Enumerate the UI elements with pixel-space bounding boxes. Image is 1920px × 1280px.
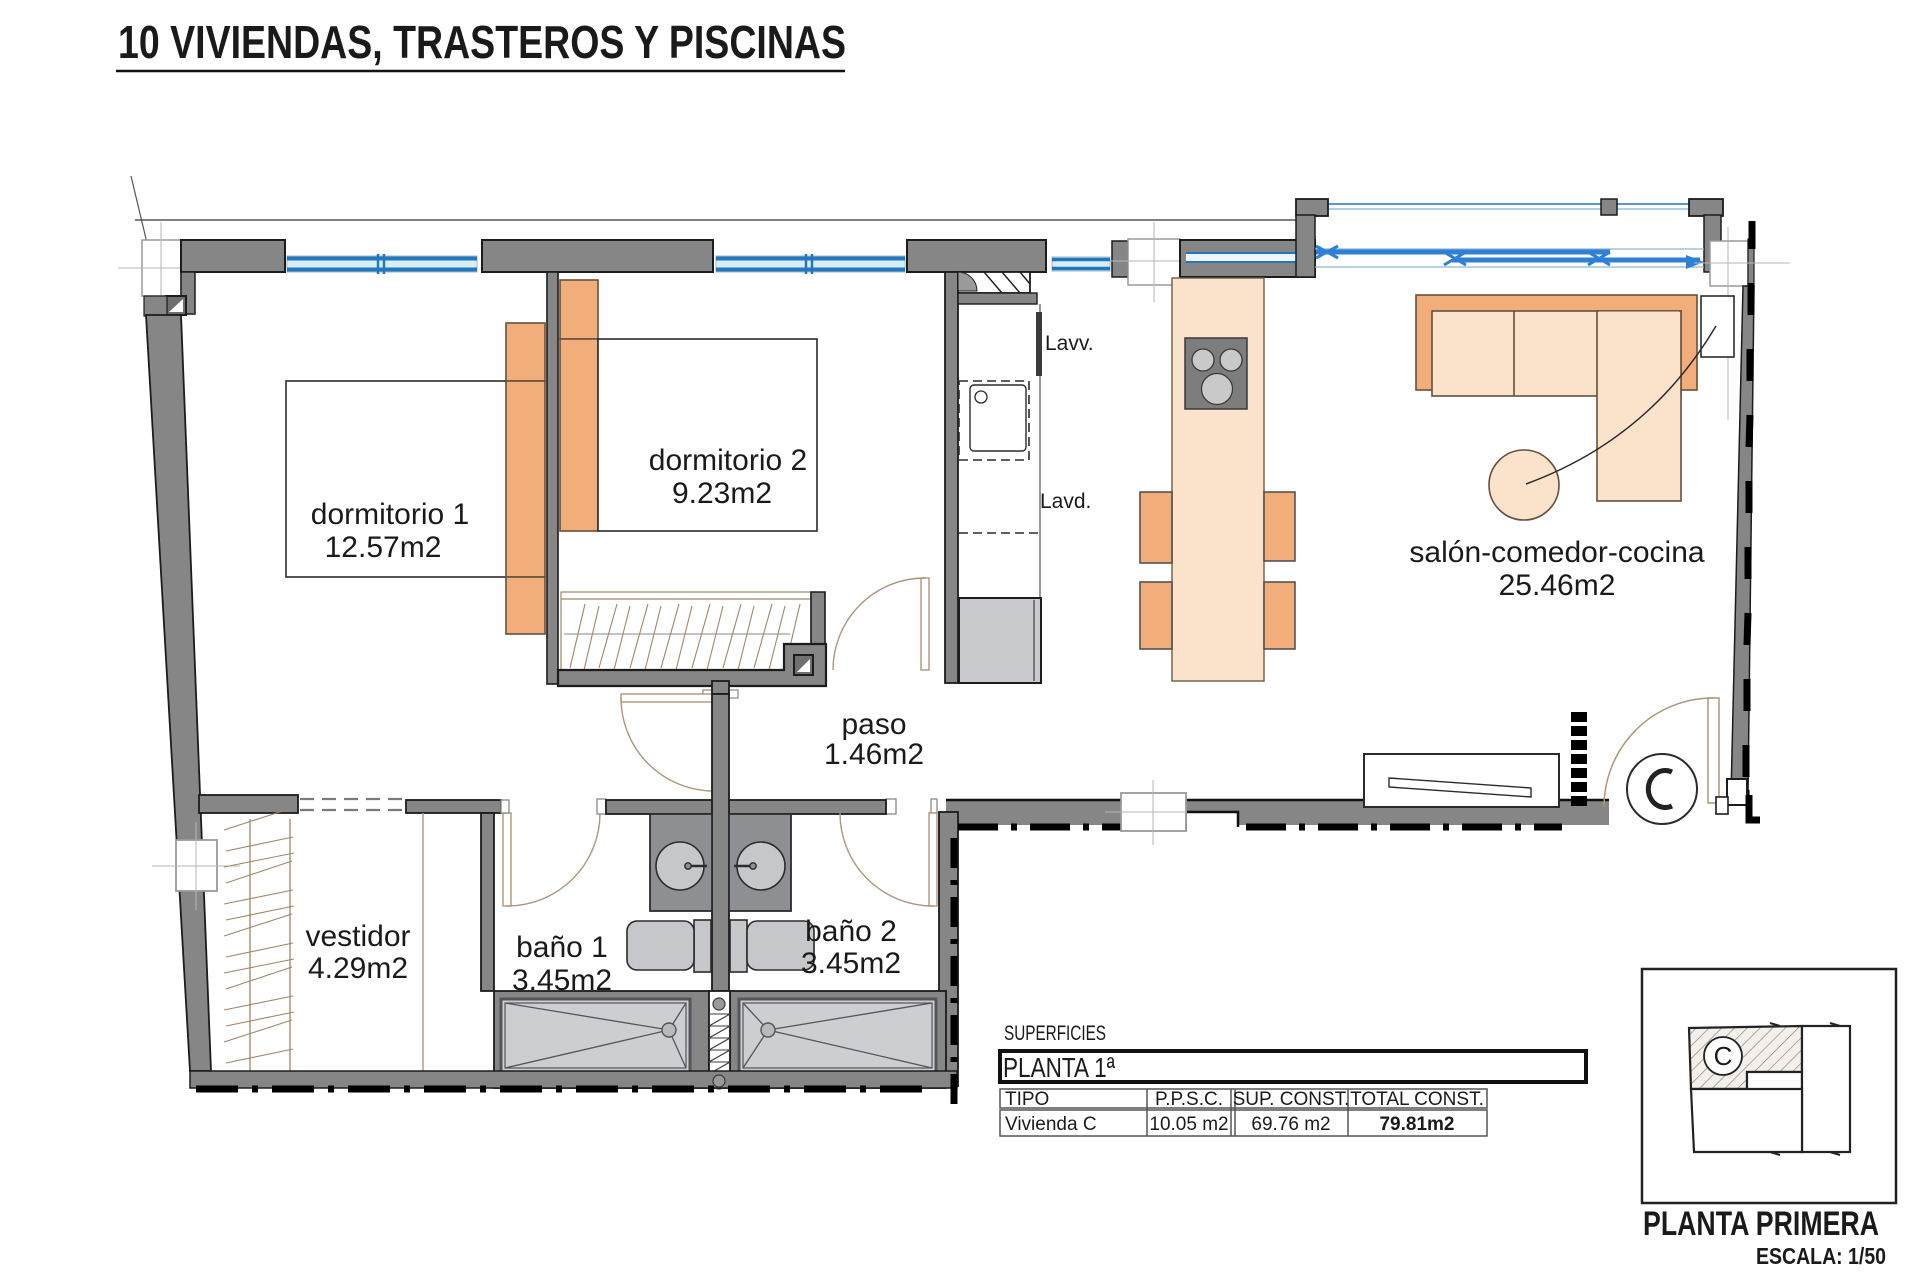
svg-text:79.81m2: 79.81m2 <box>1379 1114 1454 1135</box>
svg-text:TIPO: TIPO <box>1005 1089 1049 1110</box>
svg-text:dormitorio 1: dormitorio 1 <box>311 498 469 531</box>
svg-text:9.23m2: 9.23m2 <box>672 477 772 510</box>
svg-text:Lavv.: Lavv. <box>1045 332 1094 355</box>
svg-text:Vivienda C: Vivienda C <box>1005 1114 1097 1135</box>
svg-text:salón-comedor-cocina: salón-comedor-cocina <box>1409 536 1704 569</box>
svg-text:10.05 m2: 10.05 m2 <box>1149 1114 1228 1135</box>
svg-text:SUP. CONST.: SUP. CONST. <box>1233 1089 1350 1110</box>
svg-text:C: C <box>1714 1041 1733 1071</box>
svg-text:PLANTA 1ª: PLANTA 1ª <box>1003 1052 1116 1083</box>
svg-text:69.76 m2: 69.76 m2 <box>1251 1114 1330 1135</box>
svg-text:P.P.S.C.: P.P.S.C. <box>1155 1089 1223 1110</box>
svg-text:SUPERFICIES: SUPERFICIES <box>1004 1022 1106 1045</box>
svg-text:baño 2: baño 2 <box>805 915 897 948</box>
svg-text:dormitorio 2: dormitorio 2 <box>649 444 807 477</box>
svg-text:paso: paso <box>841 708 906 741</box>
svg-text:PLANTA PRIMERA: PLANTA PRIMERA <box>1643 1205 1879 1243</box>
svg-text:ESCALA: 1/50: ESCALA: 1/50 <box>1756 1243 1886 1269</box>
svg-text:1.46m2: 1.46m2 <box>824 738 924 771</box>
svg-text:TOTAL CONST.: TOTAL CONST. <box>1350 1089 1484 1110</box>
svg-text:25.46m2: 25.46m2 <box>1499 569 1616 602</box>
svg-text:baño 1: baño 1 <box>516 931 608 964</box>
svg-text:10 VIVIENDAS, TRASTEROS Y PISC: 10 VIVIENDAS, TRASTEROS Y PISCINAS <box>118 16 846 68</box>
svg-text:12.57m2: 12.57m2 <box>325 531 442 564</box>
svg-text:3.45m2: 3.45m2 <box>801 947 901 980</box>
svg-text:4.29m2: 4.29m2 <box>308 952 408 985</box>
svg-text:Lavd.: Lavd. <box>1040 490 1091 513</box>
svg-text:vestidor: vestidor <box>305 920 410 953</box>
